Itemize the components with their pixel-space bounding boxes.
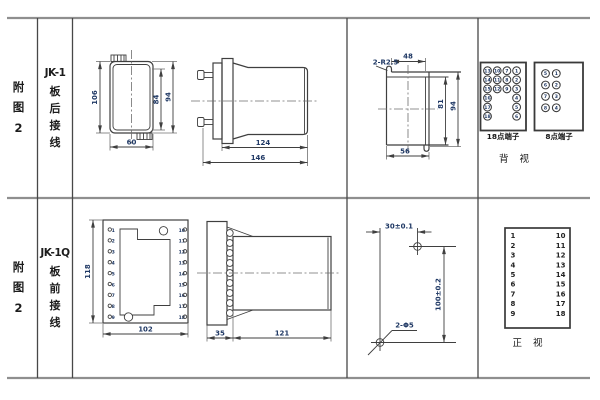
terminal-number: 18 <box>484 114 490 120</box>
terminal-block-bottom-hatch <box>140 133 150 140</box>
figure-char: 2 <box>14 303 22 315</box>
terminal-number: 15 <box>484 87 490 93</box>
terminal-number: 8 <box>112 304 115 310</box>
radius-callout: 2-R2.5 <box>373 59 399 67</box>
terminal-number: 5 <box>544 71 547 77</box>
left-terminal-column: 1 2 3 4 5 6 7 8 9 <box>108 228 115 321</box>
terminal-number: 11 <box>494 78 500 84</box>
table-number: 4 <box>511 261 516 269</box>
dim-102: 102 <box>138 326 153 334</box>
jk1-front-view: 106 60 84 94 <box>91 50 177 151</box>
table-number: 6 <box>511 281 516 289</box>
terminal-block-top-hatch <box>114 55 124 62</box>
terminal-number: 6 <box>112 282 115 288</box>
dim-56: 56 <box>400 148 410 156</box>
stud-shaft <box>204 73 213 78</box>
table-number: 9 <box>511 310 516 318</box>
wiring-char: 板 <box>50 86 61 97</box>
wiring-char: 后 <box>50 103 61 114</box>
terminal-8-label: 8点端子 <box>545 132 573 141</box>
terminal-18-label: 18点端子 <box>487 132 520 141</box>
leader-line <box>376 66 388 71</box>
model-label-bottom: JK-1Q 板 前 接 线 <box>38 199 72 377</box>
model-label-top: JK-1 板 后 接 线 <box>38 19 72 197</box>
panel-outline <box>103 220 188 323</box>
jk1q-side-view: 35 121 <box>197 222 340 342</box>
table-number: 17 <box>556 300 566 308</box>
table-number: 11 <box>556 242 566 250</box>
dim-118: 118 <box>84 264 92 279</box>
terminal-18-circles: 13 10 7 1 14 11 8 2 15 12 9 3 16 4 17 5 … <box>484 67 521 120</box>
terminal-number: 4 <box>555 106 558 112</box>
figure-char: 图 <box>13 282 25 294</box>
key-tab-bottom <box>424 145 429 151</box>
dim-121: 121 <box>275 330 290 338</box>
dim-30: 30±0.1 <box>385 223 413 231</box>
key-tab-top <box>387 66 392 72</box>
dim-124: 124 <box>256 139 271 147</box>
terminal-number: 5 <box>112 271 115 277</box>
terminal-number: 7 <box>112 293 115 299</box>
table-number: 16 <box>556 290 566 298</box>
terminal-number: 2 <box>555 83 558 89</box>
figure-label-bottom: 附 图 2 <box>0 199 37 377</box>
manual-figure-page: 106 60 84 94 124 146 <box>0 0 600 400</box>
wiring-char: 前 <box>50 283 61 294</box>
terminal-number: 3 <box>112 250 115 256</box>
mounting-hole <box>124 313 132 321</box>
dim-81: 81 <box>437 99 445 109</box>
terminal-number: 14 <box>484 78 490 84</box>
dim-106: 106 <box>91 90 99 105</box>
hole-callout: 2-Φ5 <box>395 322 414 330</box>
wiring-char: 线 <box>50 137 61 148</box>
table-number: 5 <box>511 271 516 279</box>
model-name: JK-1Q <box>40 248 69 259</box>
dim-94: 94 <box>165 92 173 102</box>
figure-char: 附 <box>13 82 25 94</box>
jk1q-front-view: 1 2 3 4 5 6 7 8 9 10 11 12 13 14 15 16 1… <box>84 220 188 338</box>
terminal-number: 10 <box>494 68 500 74</box>
terminal-number: 3 <box>515 87 518 93</box>
stud-shaft <box>204 120 213 125</box>
figure-char: 附 <box>13 262 25 274</box>
dim-84: 84 <box>153 95 161 105</box>
stepped-cutout <box>120 229 170 315</box>
drilling-plan: 30±0.1 100±0.2 2-Φ5 <box>366 223 456 356</box>
terminal-number: 5 <box>515 105 518 111</box>
wiring-char: 接 <box>50 120 61 131</box>
wiring-char: 板 <box>50 266 61 277</box>
rear-view-label: 背 视 <box>499 153 529 165</box>
table-left-column: 1 2 3 4 5 6 7 8 9 <box>511 232 516 318</box>
dim-146: 146 <box>251 154 266 162</box>
table-number: 8 <box>511 300 516 308</box>
figure-char: 2 <box>14 123 22 135</box>
terminal-8-box: 5 1 6 2 7 3 8 4 8点端子 <box>535 63 584 142</box>
front-view-label: 正 视 <box>513 337 543 349</box>
stud-head <box>198 71 205 80</box>
table-grid-horizontal <box>7 18 590 378</box>
terminal-number: 12 <box>494 87 500 93</box>
terminal-number: 2 <box>112 239 115 245</box>
jk1-side-view: 124 146 <box>191 59 317 167</box>
table-number: 10 <box>556 232 566 240</box>
dim-100: 100±0.2 <box>435 278 443 311</box>
terminal-number: 2 <box>515 78 518 84</box>
table-number: 14 <box>556 271 566 279</box>
table-number: 7 <box>511 290 516 298</box>
figure-label-top: 附 图 2 <box>0 19 37 197</box>
terminal-number: 9 <box>505 87 508 93</box>
terminal-number: 8 <box>544 106 547 112</box>
terminal-number: 17 <box>484 105 490 111</box>
table-number: 18 <box>556 310 566 318</box>
terminal-number: 1 <box>555 71 558 77</box>
terminal-number: 13 <box>484 68 490 74</box>
terminal-number: 6 <box>515 114 518 120</box>
terminal-18-box: 13 10 7 1 14 11 8 2 15 12 9 3 16 4 17 5 … <box>481 63 527 142</box>
front-view-table: 1 2 3 4 5 6 7 8 9 10 11 12 13 14 15 16 1… <box>505 228 570 349</box>
dim-48: 48 <box>403 53 413 61</box>
figure-char: 图 <box>13 102 25 114</box>
dim-94b: 94 <box>450 101 458 111</box>
terminal-number: 1 <box>515 68 518 74</box>
dim-60: 60 <box>127 139 137 147</box>
mounting-hole <box>159 227 167 235</box>
terminal-number: 4 <box>515 96 518 102</box>
terminal-number: 8 <box>505 78 508 84</box>
table-right-column: 10 11 12 13 14 15 16 17 18 <box>556 232 566 318</box>
terminal-number: 16 <box>484 96 490 102</box>
table-number: 3 <box>511 252 516 260</box>
terminal-number: 7 <box>544 94 547 100</box>
terminal-number: 9 <box>112 315 115 321</box>
jk1-cutout-view: 48 81 94 56 2-R2.5 <box>373 53 461 160</box>
terminal-number: 7 <box>505 68 508 74</box>
right-terminal-column: 10 11 12 13 14 15 16 17 18 <box>179 228 187 321</box>
table-number: 12 <box>556 252 566 260</box>
terminal-number: 1 <box>112 228 115 234</box>
terminal-number: 3 <box>555 94 558 100</box>
model-name: JK-1 <box>45 68 66 79</box>
terminal-number: 6 <box>544 83 547 89</box>
wiring-char: 线 <box>50 317 61 328</box>
table-number: 2 <box>511 242 516 250</box>
terminal-number: 4 <box>112 261 115 267</box>
table-number: 13 <box>556 261 566 269</box>
stud-head <box>198 118 205 127</box>
terminal-8-circles: 5 1 6 2 7 3 8 4 <box>542 70 561 112</box>
table-number: 15 <box>556 281 566 289</box>
figure-canvas: 106 60 84 94 124 146 <box>0 0 600 400</box>
wiring-char: 接 <box>50 300 61 311</box>
table-number: 1 <box>511 232 516 240</box>
dim-35: 35 <box>215 330 225 338</box>
